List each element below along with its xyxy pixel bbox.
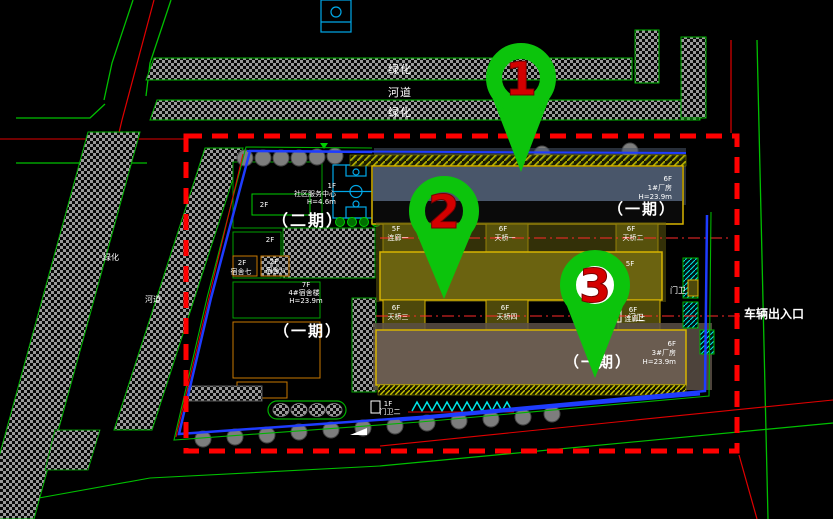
cad-site-plan-screenshot: 绿化 河道 绿化 绿化 河道 [0,0,833,519]
label-roof-b2: 5F [626,260,634,268]
label-community-name: 社区服务中心 [294,189,336,198]
label-factory1-name: 1#厂房 [648,183,672,192]
label-bridge5-floors: 6F [501,304,509,312]
pin-1-number: 1 [505,52,537,106]
label-bridge2-floors: 6F [499,225,507,233]
label-factory3-name: 3#厂房 [652,348,676,357]
label-dormitory4-floors: 7F [302,281,310,289]
label-gate2-name: 门卫二 [380,407,401,416]
label-block-b-floors: 2F [266,236,274,244]
label-vehicle-entrance: 车辆出入口 [744,306,804,321]
label-factory1-floors: 6F [664,175,672,183]
label-bridge5-name: 天桥四 [497,312,518,321]
label-dormitory4-height: H=23.9m [289,297,323,305]
label-river-left: 河道 [145,294,161,304]
label-gate-right2: 门卫 [628,312,644,322]
label-dorm7-floors: 2F [238,259,246,267]
label-factory3-floors: 6F [668,340,676,348]
label-bridge3-floors: 6F [627,225,635,233]
label-gate2-floors: 1F [384,400,392,408]
label-community-height: H=4.6m [307,198,336,206]
basketball-court-top [321,0,351,32]
label-phase2: （二期） [272,211,344,230]
label-greenbelt-left: 绿化 [103,252,119,262]
label-bridge3-name: 天桥二 [623,233,644,242]
label-phase1-left: （一期） [274,322,342,340]
label-phase1-b1: （一期） [608,200,676,218]
label-dorm8-name: 宿舍八 [266,266,287,275]
label-factory3-height: H=23.9m [642,358,676,366]
label-bridge4-name: 天桥三 [388,312,409,321]
label-dormitory4-name: 4#宿舍楼 [288,288,319,297]
label-greenbelt-top2: 绿化 [388,105,412,119]
label-river-top: 河道 [388,85,412,99]
label-greenbelt-top: 绿化 [388,62,412,76]
label-bridge1-name: 连廊一 [388,233,409,242]
label-community-floors: 1F [328,182,336,190]
site-plan-canvas: 绿化 河道 绿化 绿化 河道 [0,0,833,519]
label-dorm8-floors: 2F [270,258,278,266]
pin-2-number: 2 [428,185,460,239]
label-bridge1-floors: 5F [392,225,400,233]
label-bridge2-name: 天桥一 [495,233,516,242]
pin-3-number: 3 [579,259,611,313]
label-bridge4-floors: 6F [392,304,400,312]
label-gate-right: 门卫 [670,285,686,295]
label-dorm7-name: 宿舍七 [231,267,252,276]
label-block-a-floors: 2F [260,201,268,209]
